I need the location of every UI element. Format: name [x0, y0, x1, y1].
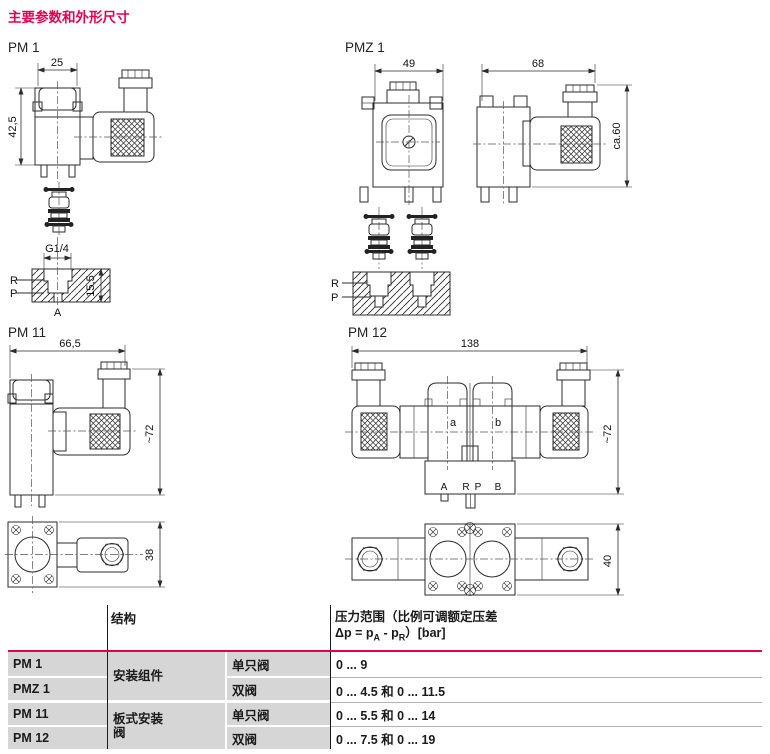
- pm1-seal-stack: [44, 182, 75, 235]
- pm12-dim-bottom: 40: [602, 555, 614, 567]
- pm1-port-p: P: [10, 288, 17, 300]
- model-cell-pm12: PM 12: [8, 727, 107, 749]
- header-pressure: 压力范围（比例可调额定压差 Δp = pA - pR）[bar]: [335, 609, 755, 644]
- pm1-dim-width: 25: [51, 57, 63, 69]
- pm12-dim-width: 138: [461, 338, 479, 350]
- pm11-dim-height: ~72: [144, 425, 156, 444]
- pm1-label: PM 1: [8, 40, 40, 55]
- model-cell-pmz1: PMZ 1: [8, 678, 107, 700]
- pressure-cell-2: 0 ... 4.5 和 0 ... 11.5: [331, 677, 762, 702]
- pm12-port-r: R: [462, 482, 469, 493]
- pm1-thread-label: G1/4: [45, 243, 69, 255]
- pm12-port-b: B: [495, 482, 502, 493]
- pm1-port-a: A: [54, 307, 62, 319]
- config-cell-3: 单只阀: [227, 703, 330, 725]
- pmz1-port-r: R: [331, 278, 339, 290]
- pm11-dim-width: 66,5: [59, 338, 80, 350]
- pm1-drawing: 25 42,5 G1/4: [8, 55, 340, 317]
- model-cell-pm1: PM 1: [8, 652, 107, 676]
- pm1-port-r: R: [10, 275, 18, 287]
- model-cell-pm11: PM 11: [8, 703, 107, 725]
- pm1-dim-height: 42,5: [7, 116, 19, 137]
- pm12-drawing: 138 a b A R P B ~72: [340, 338, 770, 600]
- header-pressure-formula: Δp = pA - pR）[bar]: [335, 626, 446, 640]
- pmz1-front-view: 49: [360, 58, 443, 205]
- pressure-cell-1: 0 ... 9: [331, 652, 762, 677]
- pmz1-drawing: 49 R: [340, 55, 770, 317]
- pmz1-label: PMZ 1: [345, 40, 385, 55]
- pressure-cell-4: 0 ... 7.5 和 0 ... 19: [331, 726, 762, 750]
- pmz1-dim-front-width: 49: [403, 58, 415, 70]
- header-pressure-line1: 压力范围（比例可调额定压差: [335, 610, 498, 624]
- pressure-cell-3: 0 ... 5.5 和 0 ... 14: [331, 702, 762, 726]
- structure-cell-mounting: 安装组件: [108, 652, 225, 700]
- pmz1-manifold-section: R P: [331, 272, 450, 315]
- pm11-bottom-view: 38: [5, 516, 165, 593]
- pmz1-dim-side-width: 68: [532, 58, 544, 70]
- pm12-front-view: 138 a b A R P B ~72: [345, 338, 624, 508]
- pmz1-port-p: P: [331, 292, 338, 304]
- pm1-dim-depth: 15,5: [85, 275, 97, 296]
- pm12-bottom-view: 40: [345, 523, 624, 596]
- pm11-side-view: 66,5 ~72: [8, 338, 165, 507]
- pm1-manifold-section: G1/4 R P A 15,5: [10, 237, 110, 319]
- pm12-valve-a-label: a: [450, 417, 457, 429]
- pm12-port-a: A: [441, 482, 448, 493]
- pm12-port-p: P: [475, 482, 482, 493]
- structure-cell-subplate: 板式安装阀: [108, 703, 225, 749]
- config-cell-1: 单只阀: [227, 652, 330, 676]
- pm12-valve-b-label: b: [495, 417, 501, 429]
- config-cell-2: 双阀: [227, 678, 330, 700]
- spec-table: 结构 压力范围（比例可调额定压差 Δp = pA - pR）[bar] PM 1…: [8, 605, 762, 754]
- config-cell-4: 双阀: [227, 727, 330, 749]
- pm11-dim-bottom: 38: [144, 549, 156, 561]
- pm12-dim-height: ~72: [602, 425, 614, 444]
- pm1-main-view: 25 42,5: [7, 57, 164, 182]
- pmz1-seal-stacks: [364, 207, 438, 269]
- pmz1-dim-height: ca.60: [611, 123, 623, 150]
- header-structure: 结构: [111, 611, 136, 627]
- pm11-drawing: 66,5 ~72 38: [8, 338, 340, 600]
- page-title: 主要参数和外形尺寸: [8, 6, 130, 26]
- pmz1-side-view: 68 ca.60: [473, 58, 632, 205]
